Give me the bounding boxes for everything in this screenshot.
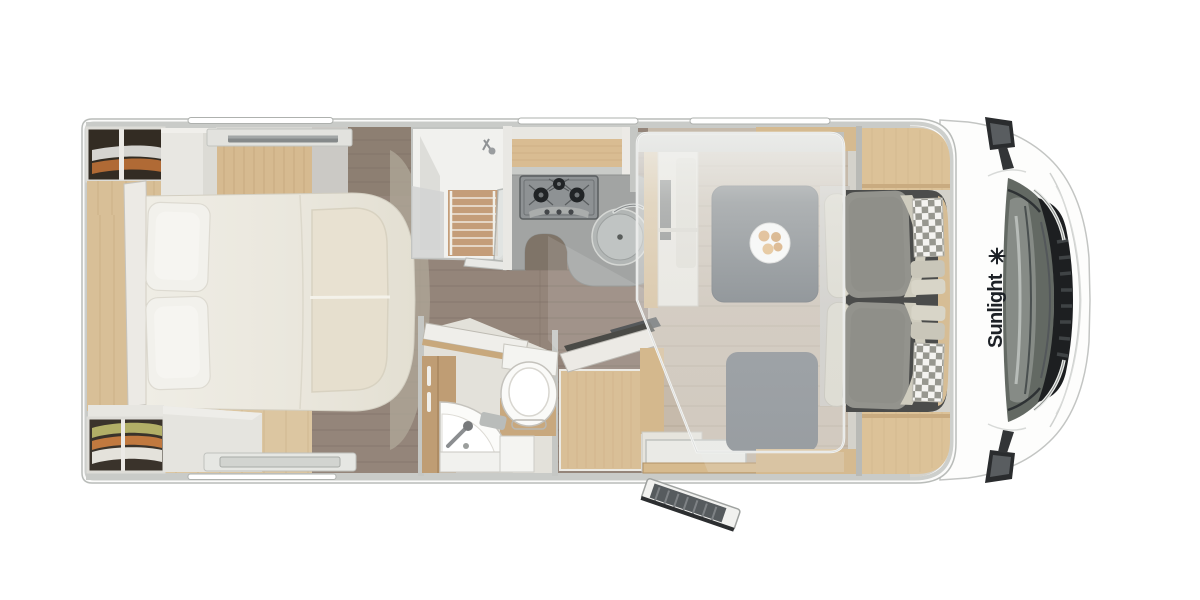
svg-text:Sunlight: Sunlight	[985, 273, 1007, 348]
